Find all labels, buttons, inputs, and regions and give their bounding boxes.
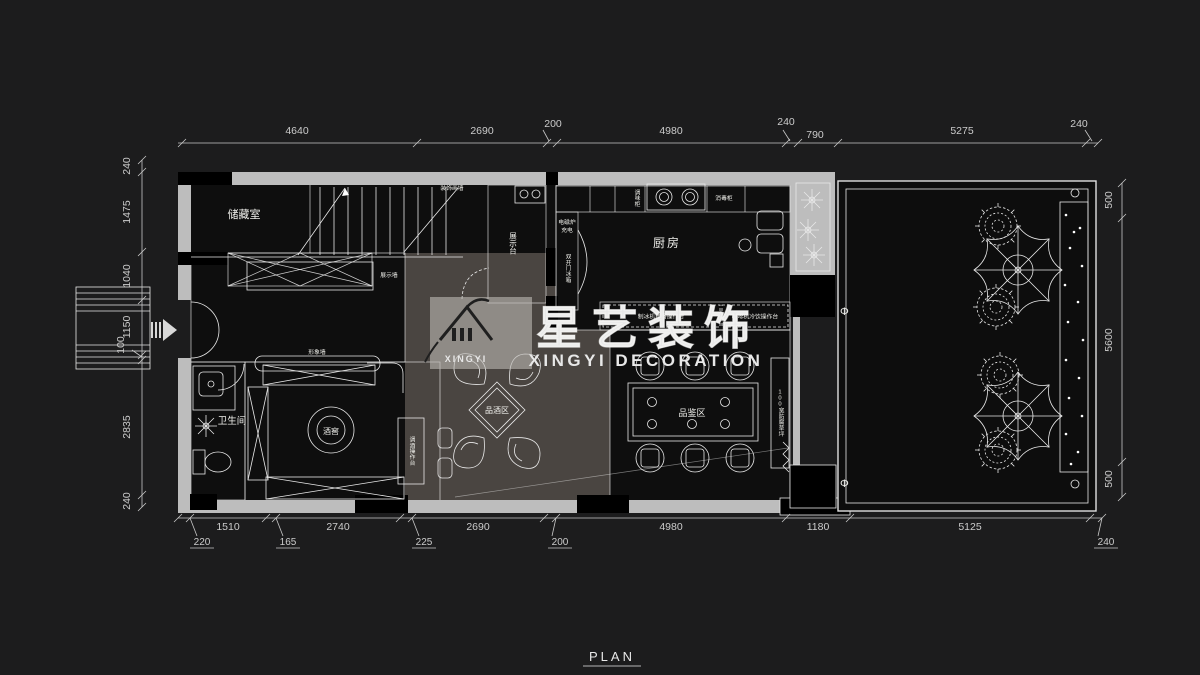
wall-right-mid — [793, 317, 800, 465]
dim-sub-165: 165 — [280, 537, 297, 548]
dim-bot-1180: 1180 — [807, 521, 830, 533]
planter-plant-icon — [803, 244, 825, 266]
plan-title: PLAN — [589, 649, 635, 664]
dim-sub-200: 200 — [552, 537, 569, 548]
kitchen-label: 厨房 — [653, 235, 681, 250]
induction-label-1: 电磁炉 — [558, 218, 576, 226]
dim-left-100: 100 — [115, 336, 127, 354]
bar-counter-label: 调酒操作台 — [408, 436, 415, 467]
parasol-icon — [974, 226, 1062, 314]
tasting-label: 品酒区 — [485, 406, 509, 415]
spice-cabinet-label: 调味柜 — [633, 188, 640, 208]
tasting-floor-left — [405, 253, 556, 502]
dim-top-4640: 4640 — [285, 125, 309, 137]
dim-top-5275: 5275 — [950, 125, 974, 137]
dim-left-1475: 1475 — [121, 200, 133, 224]
dim-sub-240: 240 — [1098, 537, 1115, 548]
pier-top-mid — [546, 172, 558, 185]
dim-bot-2690: 2690 — [466, 521, 490, 533]
terrace: Φ Φ — [796, 181, 1096, 511]
wall-left-lower — [178, 358, 191, 500]
dim-bot-5125: 5125 — [958, 521, 982, 533]
dim-right-500t: 500 — [1103, 191, 1115, 209]
drain-symbol-1: Φ — [840, 306, 849, 318]
watermark-logo-text: XINGYI — [445, 354, 488, 364]
dim-top-200: 200 — [544, 118, 562, 130]
dim-bot-2740: 2740 — [326, 521, 350, 533]
floor-plan-canvas: 储藏室 展示台 装饰画墙 调味柜 消毒柜 电磁炉 充电 双开门冰箱 制冰机西餐操… — [0, 0, 1200, 675]
dim-top-2690: 2690 — [470, 125, 494, 137]
planter-plant-icon — [797, 219, 819, 241]
pier-right-upper — [790, 275, 835, 317]
dim-top-790: 790 — [806, 129, 824, 141]
pier-corridor — [546, 248, 556, 286]
sampling-label: 品鉴区 — [678, 407, 705, 418]
watermark-en-text: XINGYI DECORATION — [529, 351, 764, 370]
pier-topleft — [178, 172, 232, 185]
dim-right-5600: 5600 — [1103, 328, 1115, 352]
fridge-label: 双开门冰箱 — [564, 254, 571, 284]
dim-top-240: 240 — [777, 116, 795, 128]
pier-bottom-bath — [190, 494, 217, 510]
dim-left-1040: 1040 — [121, 264, 133, 288]
watermark: XINGYI 星艺装饰 XINGYI DECORATION — [425, 297, 763, 370]
display-wall-label: 展示墙 — [380, 271, 398, 279]
dimension-chain-right: 500 5600 500 — [1103, 179, 1126, 501]
pier-bottom-2 — [577, 495, 629, 513]
floor-plan-drawing: 储藏室 展示台 装饰画墙 调味柜 消毒柜 电磁炉 充电 双开门冰箱 制冰机西餐操… — [0, 0, 1200, 675]
dim-bot-1510: 1510 — [216, 521, 240, 533]
bathroom-plant-icon — [195, 415, 217, 437]
pier-bottom-1 — [355, 495, 408, 513]
pier-right-lower — [790, 465, 836, 508]
display-counter-label: 展示台 — [508, 231, 517, 255]
induction-label-2: 充电 — [561, 226, 573, 234]
drain-symbol-2: Φ — [840, 478, 849, 490]
terrace-outer-wall — [838, 181, 1096, 511]
dim-sub-225: 225 — [416, 537, 433, 548]
dim-left-240b: 240 — [121, 492, 133, 510]
dim-left-240: 240 — [121, 157, 133, 175]
wine-cellar-label: 酒窖 — [323, 426, 339, 436]
image-wall-label: 形象墙 — [308, 348, 326, 356]
pier-reception-top — [178, 252, 228, 265]
wall-left-upper — [178, 185, 191, 300]
storage-label: 储藏室 — [228, 207, 261, 221]
dim-sub-220: 220 — [194, 537, 211, 548]
dimension-chain-top: 4640 2690 200 4980 240 790 5275 240 — [178, 116, 1102, 147]
wall-top — [178, 172, 835, 185]
dim-left-2835: 2835 — [121, 415, 133, 439]
dim-right-500b: 500 — [1103, 470, 1115, 488]
drawing-title: PLAN — [583, 649, 641, 666]
bathroom-label: 卫生间 — [218, 415, 247, 427]
entry-arrow-icon — [152, 319, 177, 341]
watermark-cn-text: 星艺装饰 — [536, 302, 760, 354]
wall-bottom — [178, 500, 835, 513]
dimension-chain-bottom: 1510 2740 2690 4980 1180 5125 220 165 22… — [174, 514, 1118, 548]
lawn-label: 100宽防腐草坪 — [777, 390, 784, 438]
parasol-icon — [974, 372, 1062, 460]
dim-left-1150: 1150 — [121, 316, 133, 339]
dim-top-4980: 4980 — [659, 125, 683, 137]
deco-wall-label: 装饰画墙 — [440, 184, 463, 192]
sterilizer-label: 消毒柜 — [715, 194, 733, 202]
dim-bot-4980: 4980 — [659, 521, 683, 533]
dim-top-240b: 240 — [1070, 118, 1088, 130]
dimension-chain-left: 240 1475 1040 1150 100 2835 240 — [115, 156, 146, 511]
planter-plant-icon — [801, 189, 823, 211]
